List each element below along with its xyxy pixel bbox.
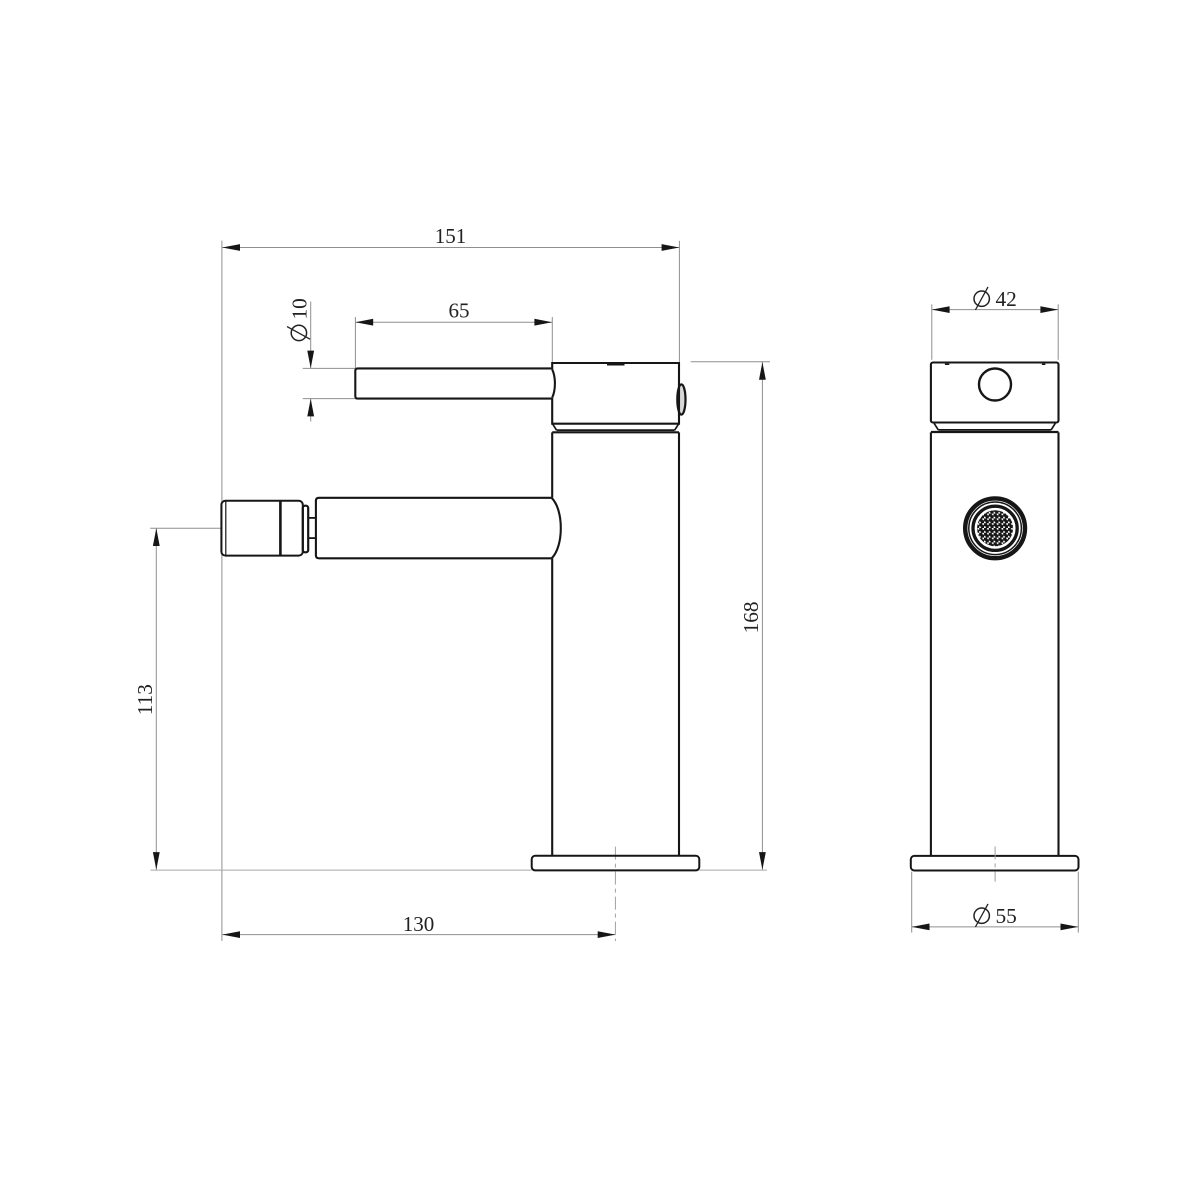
svg-text:42: 42 <box>996 287 1017 311</box>
svg-text:151: 151 <box>435 224 467 248</box>
svg-text:168: 168 <box>739 601 763 633</box>
svg-text:10: 10 <box>288 298 312 319</box>
svg-text:55: 55 <box>996 904 1017 928</box>
svg-text:130: 130 <box>403 912 435 936</box>
svg-text:65: 65 <box>449 299 470 323</box>
svg-text:113: 113 <box>133 684 157 715</box>
